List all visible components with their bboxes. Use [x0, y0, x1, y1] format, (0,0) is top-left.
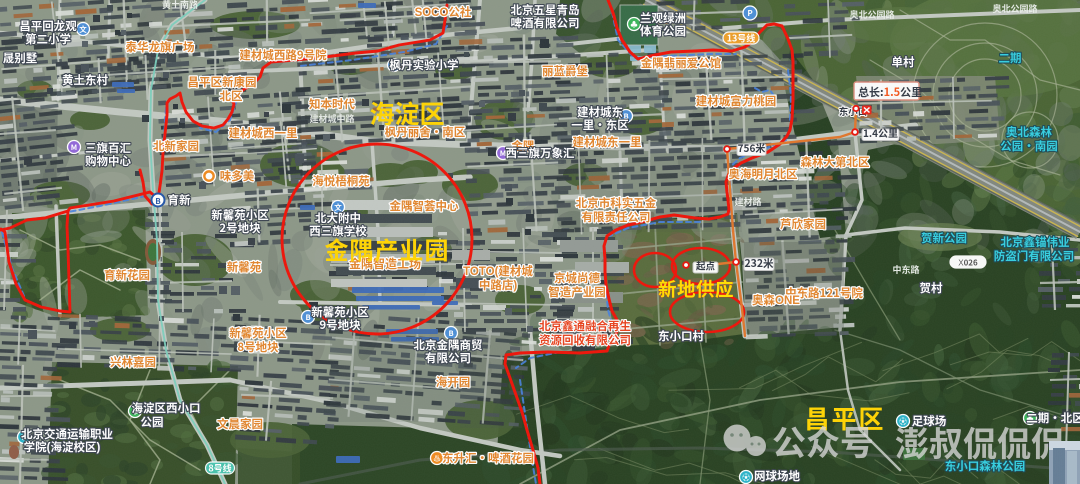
- svg-text:东升汇·啤酒花园: 东升汇·啤酒花园: [442, 450, 534, 466]
- svg-text:枫丹实验小学: 枫丹实验小学: [390, 57, 459, 73]
- svg-text:起点: 起点: [696, 259, 716, 273]
- svg-text:SOCO公社: SOCO公社: [415, 4, 472, 20]
- svg-text:奥森ONE: 奥森ONE: [752, 292, 800, 308]
- svg-text:建材路: 建材路: [734, 195, 761, 208]
- svg-text:晟别墅: 晟别墅: [3, 50, 38, 66]
- svg-text:味多美: 味多美: [220, 168, 255, 184]
- svg-text:知本时代: 知本时代: [309, 96, 355, 112]
- svg-text:金隅翡丽爱公馆: 金隅翡丽爱公馆: [641, 55, 722, 71]
- svg-text:中路店): 中路店): [479, 277, 517, 293]
- svg-text:建材城西一里: 建材城西一里: [229, 125, 298, 141]
- svg-text:建材城富力桃园: 建材城富力桃园: [696, 93, 777, 109]
- svg-text:泰华龙旗广场: 泰华龙旗广场: [126, 39, 195, 55]
- svg-text:建材城西路9号院: 建材城西路9号院: [239, 47, 327, 63]
- svg-text:贺新公园: 贺新公园: [921, 230, 967, 246]
- svg-text:芦欣家园: 芦欣家园: [780, 216, 826, 232]
- svg-text:育新: 育新: [168, 192, 191, 208]
- svg-text:M: M: [71, 142, 77, 153]
- svg-text:有限公司: 有限公司: [425, 350, 471, 366]
- svg-text:8号地块: 8号地块: [237, 339, 279, 355]
- svg-text:P: P: [747, 8, 752, 19]
- svg-text:公园: 公园: [141, 414, 164, 430]
- svg-text:2号地块: 2号地块: [219, 220, 261, 236]
- svg-text:奥海明月北区: 奥海明月北区: [729, 166, 798, 182]
- svg-text:贺村: 贺村: [920, 280, 943, 296]
- svg-text:澎叔侃侃侃: 澎叔侃侃侃: [895, 417, 1065, 466]
- svg-text:兴林嘉园: 兴林嘉园: [110, 354, 156, 370]
- svg-text:育新花园: 育新花园: [104, 267, 150, 283]
- svg-text:森林大第北区: 森林大第北区: [801, 154, 870, 170]
- svg-text:北区: 北区: [220, 88, 243, 104]
- svg-text:新地供应: 新地供应: [658, 276, 734, 302]
- svg-text:黄土东村: 黄土东村: [62, 72, 108, 88]
- svg-text:文: 文: [79, 24, 87, 35]
- svg-text:新馨苑: 新馨苑: [227, 259, 262, 275]
- svg-text:防盗门有限公司: 防盗门有限公司: [994, 248, 1075, 264]
- svg-text:B: B: [155, 196, 161, 207]
- svg-text:8号线: 8号线: [208, 462, 231, 475]
- svg-text:232米: 232米: [744, 256, 774, 271]
- svg-text:9号地块: 9号地块: [319, 317, 361, 333]
- svg-text:奥北公园路: 奥北公园路: [992, 2, 1037, 15]
- svg-text:X026: X026: [958, 258, 978, 269]
- svg-text:啤酒有限公司: 啤酒有限公司: [511, 15, 580, 31]
- svg-text:网球场地: 网球场地: [754, 468, 800, 484]
- svg-text:♣: ♣: [630, 19, 638, 30]
- svg-text:黄土南路: 黄土南路: [162, 0, 198, 11]
- svg-text:丽蓝爵堡: 丽蓝爵堡: [542, 63, 588, 79]
- svg-text:一里·东区: 一里·东区: [571, 117, 629, 133]
- svg-text:♨: ♨: [433, 453, 441, 464]
- svg-text:金隅智荟中心: 金隅智荟中心: [390, 198, 459, 214]
- svg-text:海开园: 海开园: [436, 374, 471, 390]
- svg-text:北新家园: 北新家园: [153, 138, 199, 154]
- svg-text:●: ●: [205, 171, 213, 182]
- svg-text:购物中心: 购物中心: [85, 153, 131, 169]
- svg-text:西三旗万象汇: 西三旗万象汇: [506, 145, 575, 161]
- svg-text:公众号: 公众号: [772, 416, 874, 465]
- svg-text:体育公园: 体育公园: [640, 23, 686, 39]
- svg-text:13号线: 13号线: [727, 32, 756, 45]
- svg-text:海悦梧桐苑: 海悦梧桐苑: [312, 173, 370, 189]
- svg-text:有限责任公司: 有限责任公司: [582, 209, 651, 225]
- svg-text:智造产业园: 智造产业园: [548, 284, 606, 300]
- svg-text:二期: 二期: [999, 50, 1022, 66]
- svg-text:B: B: [305, 312, 310, 323]
- svg-text:中东路: 中东路: [892, 263, 919, 276]
- svg-text:金隅产业园: 金隅产业园: [325, 231, 450, 266]
- svg-text:1.4公里: 1.4公里: [863, 125, 898, 140]
- svg-text:第二小学: 第二小学: [25, 31, 71, 47]
- svg-text:学院(海淀校区): 学院(海淀校区): [24, 439, 101, 455]
- svg-text:756米: 756米: [738, 140, 766, 155]
- svg-text:资源回收有限公司: 资源回收有限公司: [539, 332, 631, 348]
- svg-text:建材城中路: 建材城中路: [309, 112, 354, 125]
- svg-text:文晨家园: 文晨家园: [217, 416, 263, 432]
- svg-text:总长:1.5公里: 总长:1.5公里: [858, 84, 922, 100]
- svg-text:奥北公园路: 奥北公园路: [849, 8, 894, 21]
- svg-text:公园·南园: 公园·南园: [1000, 138, 1058, 154]
- svg-text:单村: 单村: [892, 54, 915, 70]
- svg-text:海淀区: 海淀区: [369, 95, 444, 131]
- svg-text:东小口村: 东小口村: [658, 328, 704, 344]
- svg-text:⚽: ⚽: [742, 472, 750, 483]
- svg-text:建材城东一里: 建材城东一里: [573, 134, 642, 150]
